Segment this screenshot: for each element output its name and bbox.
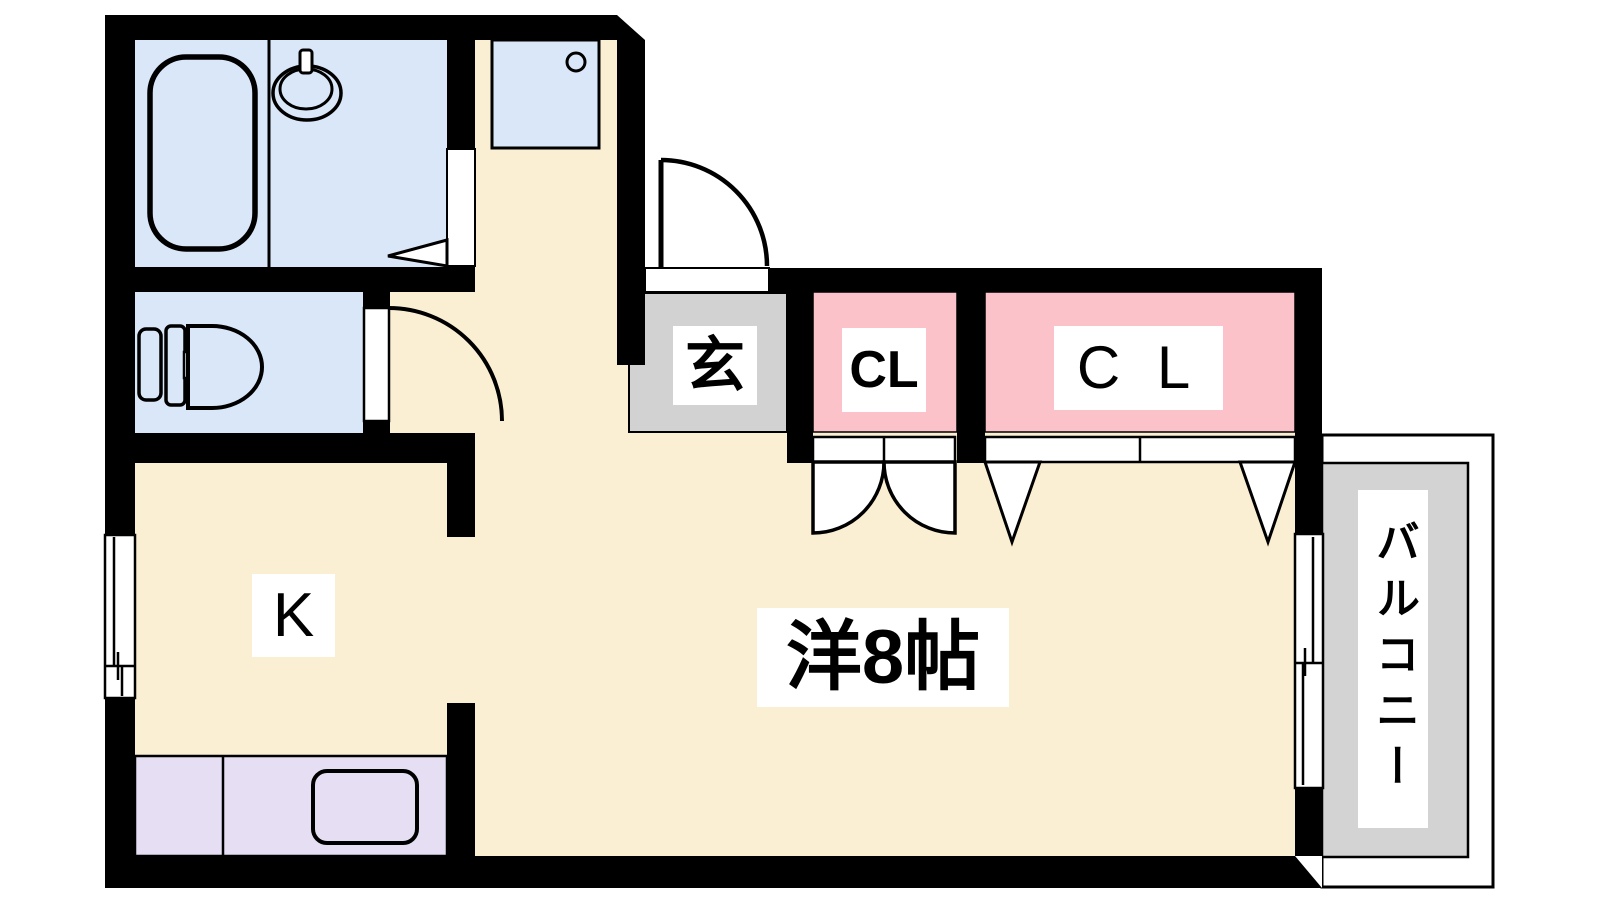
bathroom-door-opening [447,149,475,266]
wall-right-top [1295,268,1322,534]
closet-small-label: CL [842,328,926,412]
wall-kitchen-divider-bottom [447,703,475,856]
washbasin-tap [300,50,312,73]
kitchen-counter [135,756,447,856]
closet-large-label: C L [1054,326,1223,410]
wall-under-bath [105,267,475,292]
wall-top [105,15,645,40]
balcony-label: バルコニー [1358,490,1428,828]
entrance-label: 玄 [673,326,757,405]
wall-entry-column [617,40,645,365]
balcony-window [1295,534,1323,788]
wall-bath-hall [447,40,475,150]
kitchen-sink-icon [313,771,417,843]
wall-between-closets [957,268,985,463]
entrance-door-arc [661,160,767,266]
entrance-threshold [645,268,769,292]
wall-right-bottom [1295,788,1322,856]
wall-closet-top [769,268,1320,292]
wall-bottom [105,856,1295,888]
kitchen-label: K [252,574,335,657]
wall-under-toilet [105,433,475,463]
main-room-label: 洋8帖 [757,608,1009,707]
toilet-door-leaf [364,308,389,421]
kitchen-window [105,535,135,698]
wall-entrance-closet [787,268,813,463]
wall-kitchen-divider-top [447,433,475,537]
floorplan-canvas: 玄 CL C L K 洋8帖 バルコニー [0,0,1600,900]
